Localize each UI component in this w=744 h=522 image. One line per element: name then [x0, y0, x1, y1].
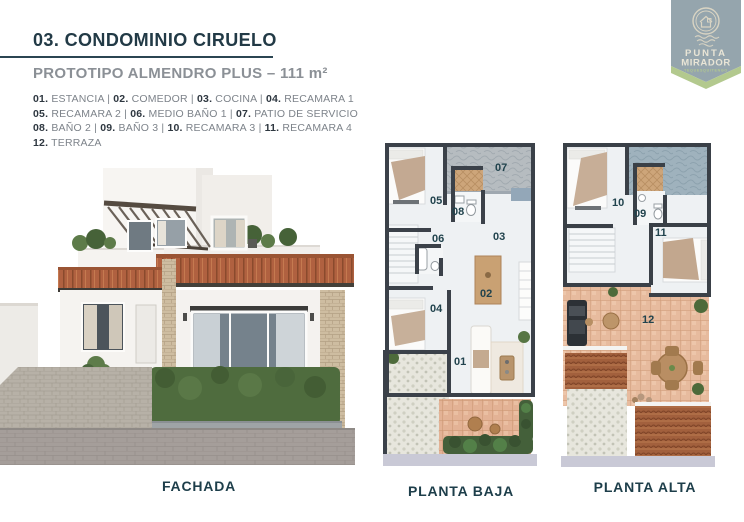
- legend-room-number: 06.: [130, 108, 145, 120]
- room-label: 12: [642, 314, 654, 326]
- legend-room-number: 08.: [33, 122, 48, 134]
- counter-blue: [511, 188, 531, 201]
- legend-line: 12. TERRAZA: [33, 136, 358, 151]
- brochure-page: 03. CONDOMINIO CIRUELO PROTOTIPO ALMENDR…: [0, 0, 744, 522]
- sidewalk: [561, 456, 715, 467]
- room-label: 11: [655, 227, 667, 239]
- room-label: 10: [612, 197, 624, 209]
- facade-render: [0, 163, 355, 465]
- shower-floor: [453, 168, 483, 192]
- legend-line: 08. BAÑO 2 | 09. BAÑO 3 | 10. RECAMARA 3…: [33, 121, 358, 136]
- legend-room-number: 01.: [33, 93, 48, 105]
- legend-room-number: 05.: [33, 108, 48, 120]
- fachada-caption: FACHADA: [162, 478, 236, 494]
- room-label: 02: [480, 288, 492, 300]
- planta-baja-caption: PLANTA BAJA: [408, 483, 514, 499]
- legend-room-number: 10.: [167, 122, 182, 134]
- page-subtitle: PROTOTIPO ALMENDRO PLUS – 111 m²: [33, 65, 328, 82]
- page-title: 03. CONDOMINIO CIRUELO: [33, 30, 277, 51]
- bed-room-05: [387, 148, 425, 204]
- back-terrace: [439, 399, 533, 454]
- bed-room-04: [387, 298, 425, 350]
- bed-room-10: [567, 148, 607, 210]
- legend-line: 01. ESTANCIA | 02. COMEDOR | 03. COCINA …: [33, 92, 358, 107]
- legend-room-number: 09.: [100, 122, 115, 134]
- sidewalk: [383, 454, 537, 466]
- room-label: 05: [430, 195, 442, 207]
- legend-room-number: 03.: [197, 93, 212, 105]
- room-label: 06: [432, 233, 444, 245]
- planta-alta-caption: PLANTA ALTA: [594, 479, 697, 495]
- room-label: 08: [452, 206, 464, 218]
- room-legend: 01. ESTANCIA | 02. COMEDOR | 03. COCINA …: [33, 92, 358, 150]
- legend-room-number: 04.: [266, 93, 281, 105]
- legend-line: 05. RECAMARA 2 | 06. MEDIO BAÑO 1 | 07. …: [33, 107, 358, 122]
- room-label: 09: [634, 208, 646, 220]
- room-label: 01: [454, 356, 466, 368]
- legend-room-number: 07.: [236, 108, 251, 120]
- logo-text-mirador: MIRADOR: [681, 58, 731, 69]
- room-label: 07: [495, 162, 507, 174]
- punta-mirador-logo: PUNTA MIRADOR TEQUESQUITENGO: [671, 0, 741, 96]
- legend-room-number: 11.: [265, 122, 280, 134]
- legend-room-number: 12.: [33, 137, 48, 149]
- upper-windows: [128, 217, 246, 251]
- logo-text-tequesquitengo: TEQUESQUITENGO: [684, 69, 728, 73]
- floorplan-planta-alta: 10 09 11 12: [561, 140, 715, 467]
- room-label: 03: [493, 231, 505, 243]
- shower-floor: [635, 165, 663, 191]
- floorplan-planta-baja: 05 07 08 06 03 02 04 01: [383, 140, 537, 467]
- kitchen-counter: [519, 262, 532, 320]
- room-label: 04: [430, 303, 443, 315]
- title-underline: [0, 56, 273, 58]
- stairs: [569, 228, 615, 272]
- legend-room-number: 02.: [113, 93, 128, 105]
- stairs: [388, 225, 418, 283]
